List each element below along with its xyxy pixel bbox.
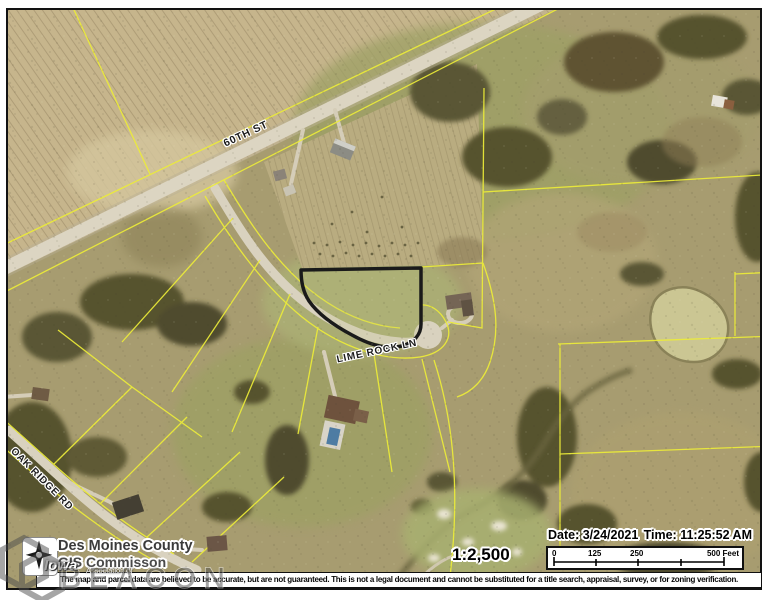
scale-bar: 0 125 250 500 Feet — [546, 546, 744, 570]
aerial-imagery — [8, 10, 760, 588]
attribution-county: Des Moines County — [58, 538, 193, 554]
scale-bar-ruler — [548, 548, 738, 568]
association-text: Association of — [86, 566, 133, 575]
time-stamp: Time: 11:25:52 AM — [644, 528, 752, 542]
beacon-map-screenshot: 60TH ST LIME ROCK LN OAK RIDGE RD Des Mo… — [0, 0, 776, 600]
map-canvas[interactable] — [6, 8, 762, 590]
scale-ratio: 1:2,500 — [452, 545, 510, 565]
disclaimer-bar: The map and parcel data are believed to … — [36, 572, 762, 588]
iowa-logo-text: Iowa — [44, 557, 77, 574]
noise-overlay — [8, 10, 760, 588]
date-stamp: Date: 3/24/2021 — [548, 528, 638, 542]
